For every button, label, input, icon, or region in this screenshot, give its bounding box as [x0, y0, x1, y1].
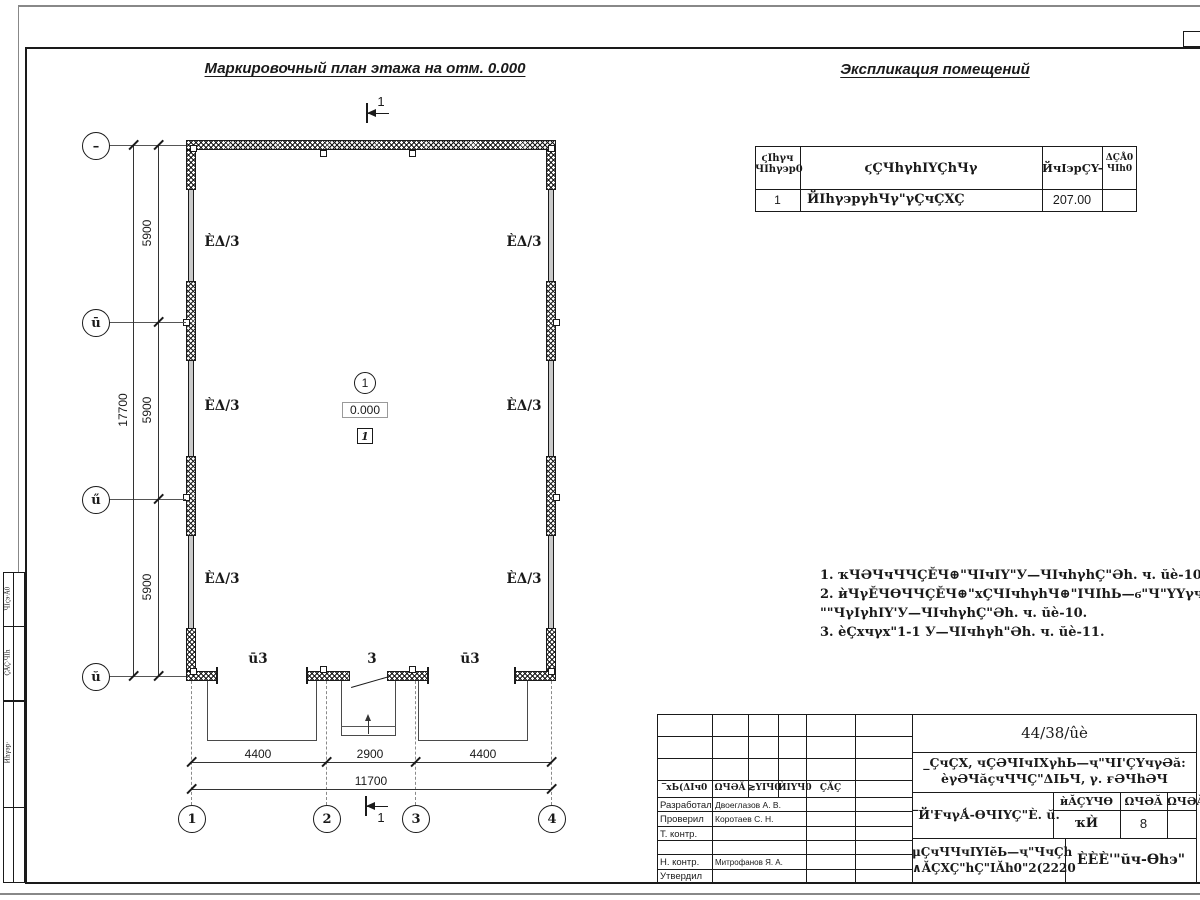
- sign-header: ÇĂÇ: [806, 783, 855, 793]
- room-type-label: ÈΔ/3: [494, 571, 554, 587]
- axis-bubble-bottom: 2: [313, 805, 341, 833]
- section-mark-label: 1: [374, 810, 388, 825]
- title-block-line: [912, 792, 1197, 793]
- left-stamp-divider: [13, 572, 14, 883]
- project-name-line1: _ÇчÇX, чÇӘЧIчIXγhЬ—ҷ"ЧI'ÇYчγӘă:: [912, 755, 1197, 770]
- title-block-line: [712, 714, 713, 883]
- title-block-line: [657, 736, 912, 737]
- room-type-label: ÈΔ/3: [494, 398, 554, 414]
- axis-bubble-left: ū: [82, 309, 110, 337]
- doc-number: 44/38/ûè: [912, 724, 1197, 742]
- dim-text-bottom: 2900: [340, 747, 400, 761]
- floor-type-mark: 1: [357, 428, 373, 444]
- explication-header-note: ΔÇÅ0 ЧIh0: [1102, 153, 1137, 174]
- entrance-arrow-icon: [365, 714, 371, 721]
- column-mark: [548, 145, 555, 152]
- note-line: 2. ѝЧγĔЧѲЧЧÇĔЧ⊕"хÇЧIчhγhЧ⊕"IЧIhЬ—ϭ"Ч"YYγ…: [820, 585, 1200, 604]
- axis-label: 2: [322, 812, 331, 827]
- header-line: ЧIh0: [1102, 164, 1137, 175]
- title-block-line: [657, 840, 912, 841]
- title-block-line: [657, 826, 912, 827]
- sign-header: ЍIYЧ0: [778, 783, 806, 793]
- dim-line-bottom-total: [191, 789, 551, 790]
- role-name: Коротаев С. Н.: [715, 814, 805, 824]
- explication-row-area: 207.00: [1042, 193, 1102, 207]
- dim-text-left: 5900: [140, 380, 154, 440]
- title-block-line: [912, 838, 1197, 839]
- axis-line-vertical: [415, 681, 416, 805]
- explication-row-number: 1: [755, 193, 800, 207]
- axis-line-vertical: [326, 681, 327, 805]
- stage-value: ҡЍ: [1053, 816, 1120, 831]
- column-mark: [553, 319, 560, 326]
- dim-text-bottom: 4400: [228, 747, 288, 761]
- wall-top: [186, 140, 556, 150]
- explication-row-name: ЙIhγ϶рγhЧγ"γÇчÇXÇ: [807, 192, 1040, 207]
- sheet-edge-left: [18, 5, 19, 572]
- column-mark: [553, 494, 560, 501]
- opening-label: ū3: [455, 651, 485, 667]
- column-mark: [320, 150, 327, 157]
- room-type-label: ÈΔ/3: [192, 571, 252, 587]
- dim-text-left-total: 17700: [116, 380, 130, 440]
- opening-label: ū3: [243, 651, 273, 667]
- title-block-line: [657, 797, 912, 798]
- header-line: ϛIhγч: [755, 153, 800, 164]
- title-block-line: [855, 714, 856, 883]
- stage-header: ΩЧӘĂIY: [1167, 795, 1200, 808]
- explication-header-number: ϛIhγч ЧIhγ϶р0: [755, 153, 800, 175]
- title-block-line: [657, 854, 912, 855]
- wall-left-pier: [186, 628, 196, 671]
- axis-label: ū: [91, 316, 100, 331]
- table-grid-line: [800, 146, 801, 212]
- title-block-line: [657, 780, 912, 781]
- room-type-label: ÈΔ/3: [192, 234, 252, 250]
- note-line: 3. ѐÇхчγх"1-1 У—ЧIчhγh"Әh. ч. ŭè-11.: [820, 623, 1200, 642]
- left-stamp-text: ÇĂÇ·ЧIh: [5, 638, 12, 688]
- project-name-line2: ѐγӘЧăçчЧЧÇ"ΔIЬЧ, γ. ғӘЧhӘЧ: [912, 771, 1197, 786]
- note-line: ""ЧγIγhIY'У—ЧIчhγhÇ"Әh. ч. ŭè-10.: [820, 604, 1200, 623]
- dim-text-bottom: 4400: [453, 747, 513, 761]
- column-mark: [190, 145, 197, 152]
- explication-title: Экспликация помещений: [810, 61, 1060, 78]
- title-block-line: [657, 758, 912, 759]
- room-type-label: ÈΔ/3: [494, 234, 554, 250]
- dim-line-bottom-segments: [191, 762, 551, 763]
- left-stamp-line: [3, 807, 25, 808]
- floor-type-number: 1: [361, 430, 369, 443]
- column-mark: [409, 150, 416, 157]
- elevation-mark: 0.000: [342, 402, 388, 418]
- wall-right-pier: [546, 150, 556, 190]
- axis-label: 3: [411, 812, 420, 827]
- wall-bottom-segment: [307, 671, 350, 681]
- header-line: ЧIhγ϶р0: [755, 164, 800, 175]
- column-mark: [548, 668, 555, 675]
- axis-label: ŭ: [91, 670, 100, 685]
- sheet-edge-top: [18, 5, 1200, 7]
- sign-header: ≳YIЧ0: [748, 783, 778, 793]
- axis-bubble-left: –: [82, 132, 110, 160]
- role-label: Утвердил: [660, 871, 712, 882]
- role-label: Н. контр.: [660, 857, 712, 868]
- frame-top: [25, 47, 1200, 49]
- axis-label: ű: [91, 493, 100, 508]
- axis-label: 1: [187, 812, 196, 827]
- note-line: 1. ҡЧӘЧчЧЧÇĔЧ⊕"ЧIчIY"У—ЧIчhγhÇ"Әh. ч. ŭè…: [820, 566, 1200, 585]
- left-stamp-text: Ѝhγ϶р·: [5, 728, 12, 778]
- axis-line-horizontal: [109, 322, 186, 323]
- title-block-line: [806, 714, 807, 883]
- role-name: Митрофанов Я. А.: [715, 858, 805, 867]
- dim-text-bottom-total: 11700: [341, 774, 401, 788]
- axis-line-horizontal: [109, 145, 186, 146]
- axis-bubble-bottom: 4: [538, 805, 566, 833]
- wall-left-pier: [186, 150, 196, 190]
- title-block-line: [912, 752, 1197, 753]
- axis-bubble-bottom: 1: [178, 805, 206, 833]
- column-mark: [190, 668, 197, 675]
- section-arrow-icon: [366, 802, 375, 810]
- role-label: Проверил: [660, 814, 712, 825]
- role-label: Т. контр.: [660, 829, 712, 840]
- table-grid-line: [755, 189, 1137, 190]
- doc-type-line2: ∧ĂÇXÇ"hÇ"IĂh0"2(2220: [912, 861, 1065, 875]
- axis-line-horizontal: [109, 676, 186, 677]
- entrance-arrow-shaft: [368, 720, 369, 734]
- porch-right: [418, 681, 528, 741]
- left-stamp-text: ЧIϛ϶·Å0: [5, 574, 12, 624]
- stage-header: ѝĂÇYЧѲ: [1053, 795, 1120, 808]
- sheet-edge-bottom: [0, 893, 1200, 895]
- notes-block: 1. ҡЧӘЧчЧЧÇĔЧ⊕"ЧIчIY"У—ЧIчhγhÇ"Әh. ч. ŭè…: [820, 566, 1200, 642]
- left-stamp-line: [3, 700, 25, 702]
- wall-bottom-segment: [387, 671, 428, 681]
- role-name: Двоеглазов А. В.: [715, 800, 805, 810]
- axis-bubble-left: ű: [82, 486, 110, 514]
- axis-bubble-bottom: 3: [402, 805, 430, 833]
- column-mark: [409, 666, 416, 673]
- room-number-bubble: 1: [354, 372, 376, 394]
- section-mark-label: 1: [374, 94, 388, 109]
- stage-header: ΩЧӘĂ: [1120, 795, 1167, 808]
- organization-name: ÈÈÈ'"ŭч-Ѳh϶": [1065, 852, 1197, 868]
- sign-header: ΩЧӘĂ: [712, 783, 748, 793]
- sign-header: ‾хЬ(ΔIч0: [657, 783, 712, 793]
- column-mark: [320, 666, 327, 673]
- room-type-label: ÈΔ/3: [192, 398, 252, 414]
- opening-label: 3: [358, 651, 386, 667]
- axis-label: 4: [547, 812, 556, 827]
- title-block-line: [657, 869, 912, 870]
- drawing-title: ‾Й'ҒчγǺ-ѲЧIYÇ"È. ŭ.: [912, 807, 1053, 822]
- explication-header-area: ЙчI϶рÇY-: [1042, 161, 1102, 175]
- axis-line-horizontal: [109, 499, 186, 500]
- wall-right-pier: [546, 628, 556, 671]
- title-block-line: [1053, 810, 1197, 811]
- dim-text-left: 5900: [140, 557, 154, 617]
- section-arrow-icon: [367, 109, 376, 117]
- corner-stamp-box: [1183, 31, 1200, 47]
- room-number: 1: [362, 376, 369, 390]
- title-block-line: [657, 811, 912, 812]
- drawing-sheet: ЧIϛ϶·Å0 ÇĂÇ·ЧIh Ѝhγ϶р· Маркировочный пла…: [0, 0, 1200, 900]
- role-label: Разработал: [660, 800, 712, 811]
- dim-line-left-total: [133, 145, 134, 676]
- axis-label: –: [93, 139, 100, 154]
- dim-line-left-segments: [158, 145, 159, 676]
- sheet-number: 8: [1120, 816, 1167, 831]
- frame-left: [25, 47, 27, 883]
- header-line: ΔÇÅ0: [1102, 153, 1137, 164]
- plan-title: Маркировочный план этажа на отм. 0.000: [180, 60, 550, 77]
- doc-type-line1: μÇчЧЧчIYIĕЬ—ҷ"ЧчÇh: [912, 845, 1065, 859]
- axis-bubble-left: ŭ: [82, 663, 110, 691]
- dim-text-left: 5900: [140, 203, 154, 263]
- left-stamp-line: [3, 626, 25, 627]
- explication-header-name: ϛÇЧhγhIYÇhЧγ: [800, 161, 1042, 176]
- porch-left: [207, 681, 317, 741]
